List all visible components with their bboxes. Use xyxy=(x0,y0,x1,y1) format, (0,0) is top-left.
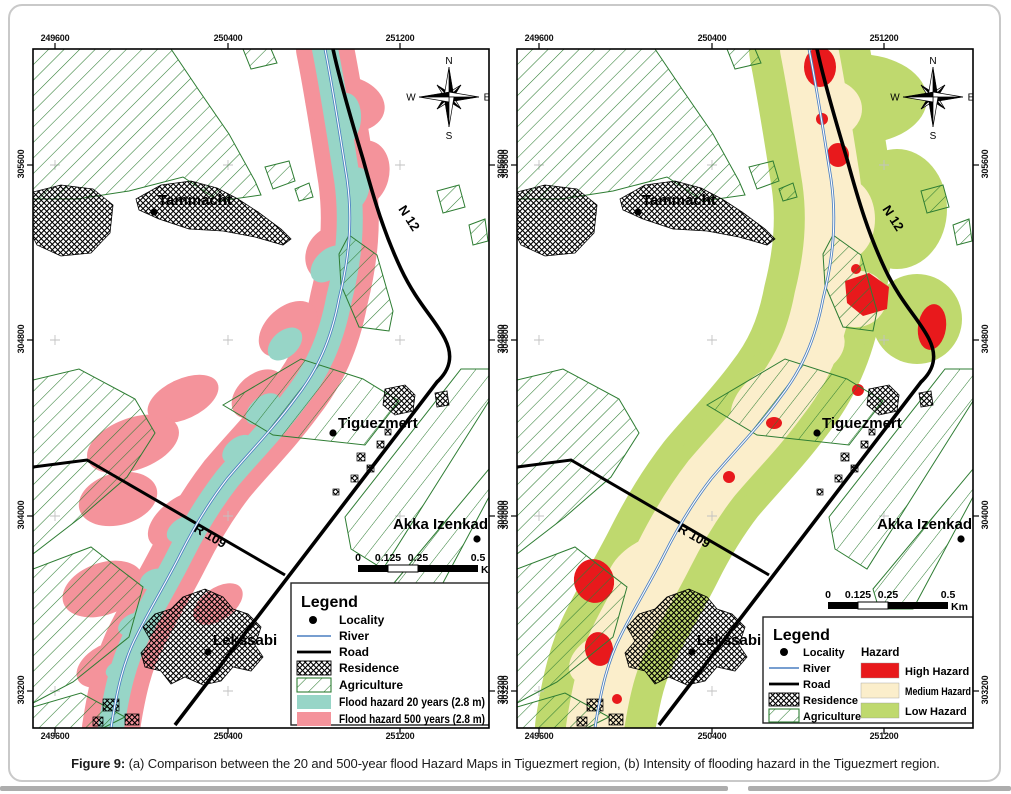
flood-20yr-symbol xyxy=(297,695,331,709)
legend-item-label: Agriculture xyxy=(339,678,403,692)
locality-dot xyxy=(150,208,157,215)
hazard-header: Hazard xyxy=(861,647,899,659)
legend-item-label: Locality xyxy=(339,613,385,627)
axis-tick-label-x: 249600 xyxy=(514,33,564,43)
axis-tick-label-x: 251200 xyxy=(859,731,909,741)
locality-label: Lekssabi xyxy=(697,632,761,649)
axis-tick-label-y: 304000 xyxy=(980,490,990,540)
scale-tick-label: 0.5 xyxy=(941,589,956,601)
scale-tick-label: 0.25 xyxy=(408,552,429,564)
map-zone xyxy=(612,694,622,704)
locality-dot xyxy=(688,648,695,655)
legend-item-label: River xyxy=(339,629,369,643)
axis-tick-label-y: 303200 xyxy=(500,665,510,715)
hazard-item-label: High Hazard xyxy=(905,666,969,678)
legend-item-label: Road xyxy=(803,679,831,691)
legend-title: Legend xyxy=(773,627,830,644)
locality-symbol xyxy=(309,616,317,624)
locality-dot xyxy=(957,535,964,542)
axis-tick-label-x: 250400 xyxy=(203,33,253,43)
locality-label: Akka Izenkad xyxy=(393,516,488,533)
locality-label: Tiguezmert xyxy=(338,415,418,432)
locality-label: Tiguezmert xyxy=(822,415,902,432)
locality-label: Akka Izenkad xyxy=(877,516,972,533)
compass-w: W xyxy=(406,93,416,104)
axis-tick-label-y: 304000 xyxy=(500,490,510,540)
page-divider-left xyxy=(0,786,728,791)
caption-label: Figure 9: xyxy=(71,756,125,771)
hazard-symbol xyxy=(861,683,899,698)
locality-dot xyxy=(813,429,820,436)
scale-tick-label: 0.125 xyxy=(375,552,401,564)
legend-item-label: Flood hazard 500 years (2.8 m) xyxy=(339,712,485,726)
axis-tick-label-x: 251200 xyxy=(375,33,425,43)
axis-tick-label-x: 249600 xyxy=(30,33,80,43)
scale-tick-label: 0 xyxy=(355,552,361,564)
compass-n: N xyxy=(929,56,936,67)
hazard-symbol xyxy=(861,663,899,678)
legend: LegendLocalityRiverRoadResidenceAgricult… xyxy=(763,617,973,723)
axis-tick-label-x: 250400 xyxy=(203,731,253,741)
legend-item-label: Locality xyxy=(803,647,845,659)
scale-tick-label: 0.25 xyxy=(878,589,899,601)
locality-dot xyxy=(473,535,480,542)
legend-title: Legend xyxy=(301,594,358,611)
legend-item-label: River xyxy=(803,663,831,675)
legend-item-label: Residence xyxy=(339,661,399,675)
axis-tick-label-x: 249600 xyxy=(514,731,564,741)
legend-item-label: Flood hazard 20 years (2.8 m) xyxy=(339,695,485,709)
map-panel-b: TammachtTiguezmertAkka IzenkadLekssabiN … xyxy=(517,49,973,728)
residence-symbol xyxy=(297,661,331,675)
axis-tick-label-y: 305600 xyxy=(500,139,510,189)
residence-symbol xyxy=(769,693,799,706)
axis-tick-label-x: 250400 xyxy=(687,33,737,43)
hazard-item-label: Medium Hazard xyxy=(905,686,971,698)
axis-tick-label-y: 304800 xyxy=(500,314,510,364)
locality-dot xyxy=(329,429,336,436)
hazard-symbol xyxy=(861,703,899,718)
map-zone xyxy=(723,471,735,483)
hazard-item-label: Low Hazard xyxy=(905,706,967,718)
axis-tick-label-y: 305600 xyxy=(16,139,26,189)
scale-unit: Km xyxy=(951,601,968,613)
axis-tick-label-y: 305600 xyxy=(980,139,990,189)
axis-tick-label-x: 251200 xyxy=(375,731,425,741)
axis-tick-label-y: 304800 xyxy=(16,314,26,364)
legend-item-label: Agriculture xyxy=(803,711,861,723)
axis-tick-label-y: 303200 xyxy=(16,665,26,715)
compass-s: S xyxy=(930,131,937,142)
axis-tick-label-x: 249600 xyxy=(30,731,80,741)
axis-tick-label-x: 250400 xyxy=(687,731,737,741)
locality-symbol xyxy=(780,648,788,656)
map-a: TammachtTiguezmertAkka IzenkadLekssabiN … xyxy=(33,49,489,728)
locality-dot xyxy=(634,208,641,215)
axis-tick-label-y: 304800 xyxy=(980,314,990,364)
compass-n: N xyxy=(445,56,452,67)
axis-tick-label-x: 251200 xyxy=(859,33,909,43)
flood-500yr-symbol xyxy=(297,712,331,726)
page-divider-right xyxy=(748,786,1011,791)
caption-text: (a) Comparison between the 20 and 500-ye… xyxy=(125,756,940,771)
agriculture-symbol xyxy=(769,709,799,722)
locality-dot xyxy=(204,648,211,655)
agriculture-symbol xyxy=(297,678,331,692)
locality-label: Lekssabi xyxy=(213,632,277,649)
figure-caption: Figure 9: (a) Comparison between the 20 … xyxy=(0,756,1011,771)
compass-s: S xyxy=(446,131,453,142)
scale-tick-label: 0 xyxy=(825,589,831,601)
locality-label: Tammacht xyxy=(642,192,716,209)
locality-label: Tammacht xyxy=(158,192,232,209)
axis-tick-label-y: 303200 xyxy=(980,665,990,715)
scale-tick-label: 0.125 xyxy=(845,589,871,601)
figure-page: TammachtTiguezmertAkka IzenkadLekssabiN … xyxy=(0,0,1011,794)
axis-tick-label-y: 304000 xyxy=(16,490,26,540)
map-panel-a: TammachtTiguezmertAkka IzenkadLekssabiN … xyxy=(33,49,489,728)
legend-item-label: Road xyxy=(339,645,369,659)
map-b: TammachtTiguezmertAkka IzenkadLekssabiN … xyxy=(517,49,973,728)
compass-w: W xyxy=(890,93,900,104)
legend: LegendLocalityRiverRoadResidenceAgricult… xyxy=(291,583,489,726)
legend-item-label: Residence xyxy=(803,695,858,707)
scale-tick-label: 0.5 xyxy=(471,552,486,564)
